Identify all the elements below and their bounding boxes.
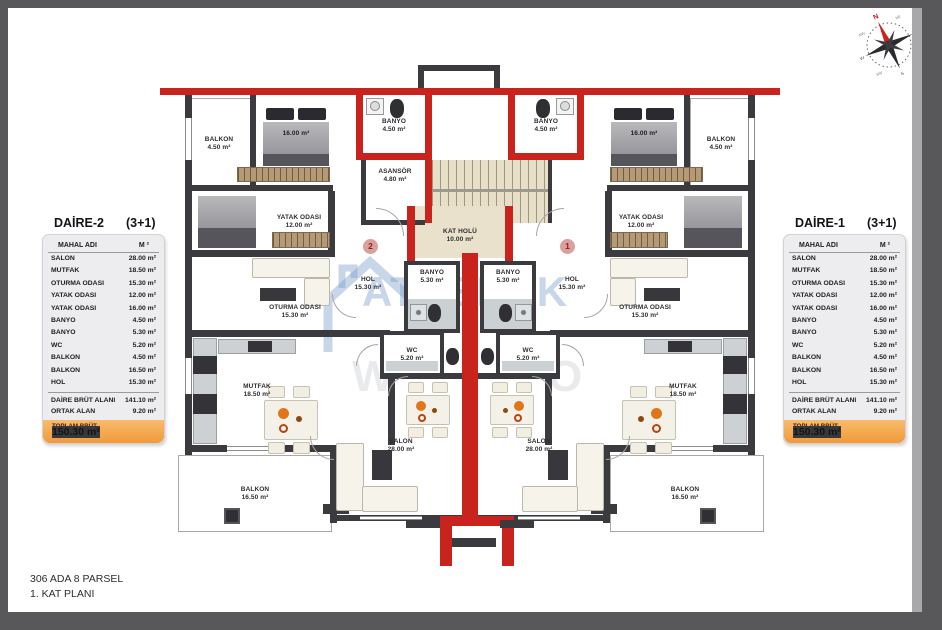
frame-bottom bbox=[0, 612, 942, 630]
room-label-hol-right: HOL15.30 m² bbox=[550, 276, 594, 293]
toilet-icon bbox=[499, 304, 512, 322]
table-row: BALKON16.50 m² bbox=[43, 365, 164, 377]
room-label-banyo-top-right: BANYO4.50 m² bbox=[515, 118, 577, 135]
apartment-name: DAİRE-1 bbox=[795, 216, 845, 230]
door-swing-icon bbox=[376, 208, 404, 236]
room-label-salon-left: SALON28.00 m² bbox=[368, 438, 434, 455]
sink-basin-icon bbox=[370, 101, 380, 111]
toilet-icon bbox=[446, 348, 459, 365]
wall-segment bbox=[607, 185, 755, 191]
planter-icon bbox=[224, 508, 240, 524]
sofa-icon bbox=[522, 486, 578, 512]
room-label-banyo53-right: BANYO5.30 m² bbox=[482, 269, 534, 286]
red-wall-segment bbox=[508, 95, 515, 160]
window-icon bbox=[185, 358, 192, 394]
room-label-asansor: ASANSÖR4.80 m² bbox=[366, 168, 424, 185]
floor-plan: ATABERK W O bbox=[160, 58, 780, 566]
entrance-sill bbox=[500, 520, 534, 528]
total-value: 150.30 m² bbox=[52, 426, 100, 438]
apartment-name: DAİRE-2 bbox=[54, 216, 104, 230]
col-name: MAHAL ADI bbox=[799, 242, 838, 249]
wardrobe-icon bbox=[237, 167, 330, 182]
table-row: MUTFAK18.50 m² bbox=[784, 265, 905, 277]
table-row: YATAK ODASI16.00 m² bbox=[43, 303, 164, 315]
tv-icon bbox=[260, 288, 296, 301]
table-row: BANYO5.30 m² bbox=[43, 327, 164, 339]
plate-icon bbox=[432, 408, 437, 413]
room-label-salon-right: SALON28.00 m² bbox=[506, 438, 572, 455]
summary-row: ORTAK ALAN9.20 m² bbox=[789, 406, 900, 417]
red-wall-segment bbox=[356, 95, 363, 160]
bed-pillow-icon bbox=[298, 108, 326, 120]
frame-shade bbox=[912, 8, 922, 612]
plate-icon bbox=[279, 424, 288, 433]
red-wall-segment bbox=[407, 206, 415, 263]
frame-right bbox=[922, 0, 942, 630]
plate-icon bbox=[638, 416, 644, 422]
table-header: MAHAL ADI M ² bbox=[48, 240, 159, 253]
entrance-sill bbox=[452, 538, 496, 547]
table-row: MUTFAK18.50 m² bbox=[43, 265, 164, 277]
summary-row: DAİRE BRÜT ALANI141.10 m² bbox=[48, 395, 159, 406]
stove-icon bbox=[193, 356, 217, 374]
bed-foot-icon bbox=[684, 228, 742, 248]
parcel-info: 306 ADA 8 PARSEL bbox=[30, 572, 123, 587]
table-row: SALON28.00 m² bbox=[784, 253, 905, 265]
bed-pillow-icon bbox=[646, 108, 674, 120]
apartment-table-daire-2: DAİRE-2 (3+1) MAHAL ADI M ² SALON28.00 m… bbox=[42, 216, 165, 444]
room-label-balkon-bottom-right: BALKON16.50 m² bbox=[648, 486, 722, 503]
drawing-title: 306 ADA 8 PARSEL 1. KAT PLANI bbox=[30, 572, 123, 602]
table-row: WC5.20 m² bbox=[43, 340, 164, 352]
total-row: TOPLAM BRÜT ALAN 150.30 m² bbox=[784, 420, 905, 443]
wardrobe-icon bbox=[610, 167, 703, 182]
red-wall-segment bbox=[505, 206, 513, 263]
chair-icon bbox=[432, 427, 448, 438]
sofa-icon bbox=[362, 486, 418, 512]
bed-foot-icon bbox=[198, 228, 256, 248]
red-wall-segment bbox=[160, 88, 780, 95]
wall-segment bbox=[185, 330, 390, 337]
table-row: HOL15.30 m² bbox=[43, 377, 164, 389]
bed-icon bbox=[611, 122, 677, 156]
wall-segment bbox=[185, 250, 335, 257]
col-name: MAHAL ADI bbox=[58, 242, 97, 249]
chair-icon bbox=[630, 442, 647, 454]
apartment-type: (3+1) bbox=[867, 216, 897, 230]
room-label-bed16-right: 16.00 m² bbox=[618, 130, 670, 138]
bed-foot-icon bbox=[611, 154, 677, 166]
wall-segment bbox=[713, 445, 755, 452]
unit-marker-2: 2 bbox=[363, 239, 378, 254]
col-area: M ² bbox=[139, 242, 149, 249]
svg-text:N: N bbox=[872, 13, 880, 21]
summary-row: DAİRE BRÜT ALANI141.10 m² bbox=[789, 395, 900, 406]
wall-segment bbox=[605, 250, 755, 257]
table-row: WC5.20 m² bbox=[784, 340, 905, 352]
toilet-icon bbox=[536, 99, 550, 118]
sofa-icon bbox=[304, 278, 330, 306]
frame-left bbox=[0, 0, 8, 630]
bed-icon bbox=[263, 122, 329, 156]
toilet-icon bbox=[428, 304, 441, 322]
svg-text:NE: NE bbox=[895, 14, 902, 20]
svg-text:NW: NW bbox=[858, 31, 866, 37]
summary-list: DAİRE BRÜT ALANI141.10 m²ORTAK ALAN9.20 … bbox=[48, 392, 159, 417]
window-icon bbox=[748, 358, 755, 394]
room-label-oturma-left: OTURMA ODASI15.30 m² bbox=[245, 304, 345, 321]
stove-icon bbox=[723, 356, 747, 374]
svg-text:S: S bbox=[900, 71, 905, 77]
sink-basin-icon bbox=[560, 101, 570, 111]
chair-icon bbox=[516, 427, 532, 438]
table-row: YATAK ODASI12.00 m² bbox=[43, 290, 164, 302]
room-label-oturma-right: OTURMA ODASI15.30 m² bbox=[595, 304, 695, 321]
toilet-icon bbox=[390, 99, 404, 118]
room-area-list: SALON28.00 m²MUTFAK18.50 m²OTURMA ODASI1… bbox=[43, 253, 164, 389]
red-wall-segment bbox=[356, 153, 432, 160]
sink-icon bbox=[668, 341, 692, 352]
chair-icon bbox=[293, 386, 310, 398]
bed-pillow-icon bbox=[266, 108, 294, 120]
plate-icon bbox=[503, 408, 508, 413]
shower-icon bbox=[515, 304, 532, 321]
chair-icon bbox=[432, 382, 448, 393]
col-area: M ² bbox=[880, 242, 890, 249]
sofa-icon bbox=[610, 258, 688, 278]
chair-icon bbox=[655, 442, 672, 454]
floor-info: 1. KAT PLANI bbox=[30, 587, 123, 602]
svg-text:W: W bbox=[859, 55, 866, 62]
plate-icon bbox=[514, 401, 524, 411]
tv-icon bbox=[644, 288, 680, 301]
sofa-icon bbox=[610, 278, 636, 306]
plate-icon bbox=[278, 408, 289, 419]
summary-row: ORTAK ALAN9.20 m² bbox=[48, 406, 159, 417]
svg-text:SW: SW bbox=[876, 71, 884, 77]
plate-icon bbox=[418, 414, 426, 422]
door-swing-icon bbox=[562, 344, 584, 366]
table-row: BANYO4.50 m² bbox=[43, 315, 164, 327]
chair-icon bbox=[492, 427, 508, 438]
area-table: MAHAL ADI M ² SALON28.00 m²MUTFAK18.50 m… bbox=[42, 234, 165, 444]
room-label-wc-left: WC5.20 m² bbox=[386, 347, 438, 364]
area-table: MAHAL ADI M ² SALON28.00 m²MUTFAK18.50 m… bbox=[783, 234, 906, 444]
room-label-banyo-top-left: BANYO4.50 m² bbox=[363, 118, 425, 135]
table-row: HOL15.30 m² bbox=[784, 377, 905, 389]
room-label-hol-left: HOL15.30 m² bbox=[346, 276, 390, 293]
toilet-icon bbox=[481, 348, 494, 365]
stairs-landing-line bbox=[432, 189, 548, 192]
room-label-wc-right: WC5.20 m² bbox=[502, 347, 554, 364]
bed-icon bbox=[198, 196, 256, 230]
frame-top bbox=[0, 0, 942, 8]
red-wall-segment bbox=[577, 95, 584, 160]
planter-icon bbox=[700, 508, 716, 524]
table-row: BALKON4.50 m² bbox=[43, 352, 164, 364]
sofa-icon bbox=[336, 443, 364, 511]
counter-icon bbox=[193, 338, 217, 444]
summary-list: DAİRE BRÜT ALANI141.10 m²ORTAK ALAN9.20 … bbox=[789, 392, 900, 417]
total-row: TOPLAM BRÜT ALAN 150.30 m² bbox=[43, 420, 164, 443]
table-header: MAHAL ADI M ² bbox=[789, 240, 900, 253]
table-row: BANYO5.30 m² bbox=[784, 327, 905, 339]
bed-icon bbox=[684, 196, 742, 230]
appliance-icon bbox=[193, 394, 217, 414]
dining-table-icon bbox=[490, 395, 534, 425]
table-row: BALKON16.50 m² bbox=[784, 365, 905, 377]
shower-icon bbox=[410, 304, 427, 321]
room-label-balkon-bottom-left: BALKON16.50 m² bbox=[218, 486, 292, 503]
chair-icon bbox=[516, 382, 532, 393]
table-row: SALON28.00 m² bbox=[43, 253, 164, 265]
room-label-banyo53-left: BANYO5.30 m² bbox=[406, 269, 458, 286]
chair-icon bbox=[268, 442, 285, 454]
chair-icon bbox=[492, 382, 508, 393]
table-row: OTURMA ODASI15.30 m² bbox=[43, 278, 164, 290]
page: N E S W NE SE SW NW DAİRE-2 (3+1) MAHAL … bbox=[0, 0, 942, 630]
bed-foot-icon bbox=[263, 154, 329, 166]
apartment-type: (3+1) bbox=[126, 216, 156, 230]
room-label-yatak12-right: YATAK ODASI12.00 m² bbox=[602, 214, 680, 231]
dining-table-icon bbox=[406, 395, 450, 425]
appliance-icon bbox=[723, 394, 747, 414]
entrance-sill bbox=[406, 520, 440, 528]
red-wall-segment bbox=[462, 253, 478, 516]
table-row: YATAK ODASI16.00 m² bbox=[784, 303, 905, 315]
plate-icon bbox=[296, 416, 302, 422]
sofa-icon bbox=[576, 443, 604, 511]
room-label-kat-holu: KAT HOLÜ10.00 m² bbox=[415, 228, 505, 245]
room-label-mutfak-left: MUTFAK18.50 m² bbox=[220, 383, 294, 400]
table-row: BALKON4.50 m² bbox=[784, 352, 905, 364]
plate-icon bbox=[514, 414, 522, 422]
room-label-balkon-top-left: BALKON4.50 m² bbox=[190, 136, 248, 153]
room-area-list: SALON28.00 m²MUTFAK18.50 m²OTURMA ODASI1… bbox=[784, 253, 905, 389]
room-label-bed16-left: 16.00 m² bbox=[270, 130, 322, 138]
apartment-table-daire-1: DAİRE-1 (3+1) MAHAL ADI M ² SALON28.00 m… bbox=[783, 216, 906, 444]
apartment-title: DAİRE-2 (3+1) bbox=[42, 216, 165, 230]
plate-icon bbox=[651, 408, 662, 419]
plate-icon bbox=[652, 424, 661, 433]
dining-table-icon bbox=[264, 400, 318, 440]
table-row: YATAK ODASI12.00 m² bbox=[784, 290, 905, 302]
red-wall-segment bbox=[508, 153, 584, 160]
table-row: OTURMA ODASI15.30 m² bbox=[784, 278, 905, 290]
wall-segment bbox=[185, 185, 333, 191]
counter-icon bbox=[723, 338, 747, 444]
apartment-title: DAİRE-1 (3+1) bbox=[783, 216, 906, 230]
unit-marker-1: 1 bbox=[560, 239, 575, 254]
table-row: BANYO4.50 m² bbox=[784, 315, 905, 327]
chair-icon bbox=[408, 382, 424, 393]
dining-table-icon bbox=[622, 400, 676, 440]
wall-segment bbox=[185, 445, 227, 452]
bed-pillow-icon bbox=[614, 108, 642, 120]
sofa-icon bbox=[252, 258, 330, 278]
room-label-balkon-top-right: BALKON4.50 m² bbox=[692, 136, 750, 153]
chair-icon bbox=[408, 427, 424, 438]
wardrobe-icon bbox=[610, 232, 668, 248]
total-value: 150.30 m² bbox=[793, 426, 841, 438]
chair-icon bbox=[630, 386, 647, 398]
room-label-yatak12-left: YATAK ODASI12.00 m² bbox=[260, 214, 338, 231]
sink-icon bbox=[248, 341, 272, 352]
plate-icon bbox=[416, 401, 426, 411]
wardrobe-icon bbox=[272, 232, 330, 248]
chair-icon bbox=[293, 442, 310, 454]
wall-segment bbox=[418, 65, 500, 71]
wall-segment bbox=[550, 330, 755, 337]
room-label-mutfak-right: MUTFAK18.50 m² bbox=[646, 383, 720, 400]
